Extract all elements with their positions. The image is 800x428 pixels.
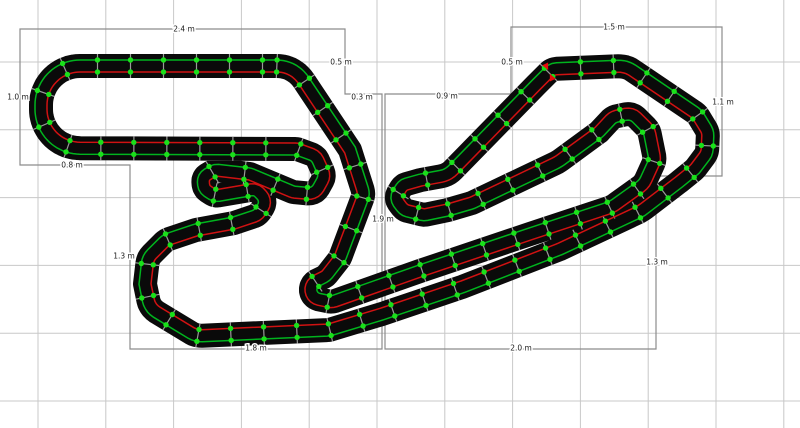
track-editor-canvas[interactable]: 2.4 m0.5 m0.3 m1.0 m0.8 m1.3 m1.8 m1.9 m… (0, 0, 800, 428)
dimension-label: 1.8 m (245, 344, 267, 353)
dimension-label: 0.9 m (436, 92, 458, 101)
dimension-label: 1.3 m (113, 252, 135, 261)
dimension-label: 2.4 m (173, 25, 195, 34)
dimension-label: 0.5 m (501, 58, 523, 67)
dimension-label: 1.3 m (646, 258, 668, 267)
dimension-label: 1.0 m (7, 93, 29, 102)
dimension-label: 0.8 m (61, 161, 83, 170)
layout-plan[interactable]: 2.4 m0.5 m0.3 m1.0 m0.8 m1.3 m1.8 m1.9 m… (0, 0, 800, 428)
dimension-label: 0.3 m (351, 93, 373, 102)
dimension-label: 0.5 m (330, 58, 352, 67)
dimension-label: 2.0 m (510, 344, 532, 353)
dimension-label: 1.5 m (603, 23, 625, 32)
dimension-label: 1.9 m (372, 215, 394, 224)
dimension-label: 1.1 m (712, 98, 734, 107)
